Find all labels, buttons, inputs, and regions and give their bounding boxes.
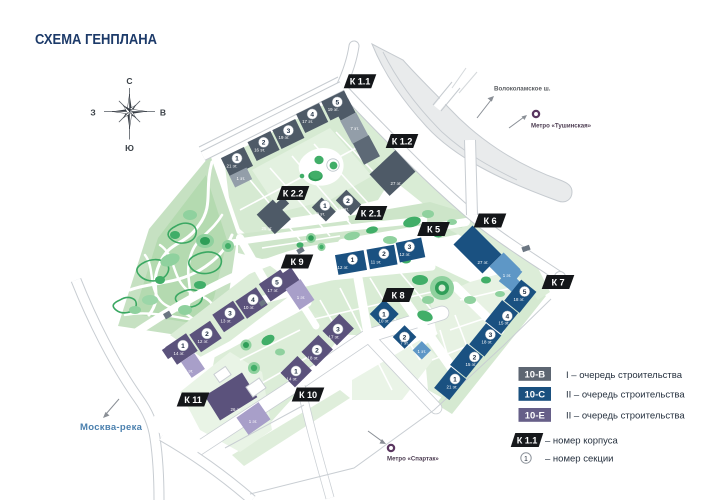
svg-text:К 11: К 11 [184, 395, 201, 405]
svg-text:II – очередь строительства: II – очередь строительства [566, 411, 685, 422]
svg-text:18 эт.: 18 эт. [308, 356, 319, 361]
svg-text:3: 3 [287, 128, 291, 135]
svg-text:1 эт.: 1 эт. [297, 295, 306, 300]
svg-text:3: 3 [336, 326, 340, 333]
svg-text:5: 5 [335, 99, 339, 106]
svg-text:К 2.2: К 2.2 [283, 188, 303, 198]
svg-text:10-С: 10-С [525, 390, 546, 401]
svg-text:25 эт.: 25 эт. [262, 226, 273, 231]
svg-text:Ю: Ю [125, 143, 134, 153]
svg-text:К 1.2: К 1.2 [392, 136, 412, 146]
svg-text:1 эт.: 1 эт. [185, 369, 194, 374]
svg-text:К 10: К 10 [299, 390, 317, 400]
svg-text:15 эт.: 15 эт. [466, 362, 477, 367]
svg-text:К 6: К 6 [484, 216, 497, 226]
svg-text:2: 2 [315, 347, 319, 354]
svg-text:19 эт.: 19 эт. [328, 107, 339, 112]
svg-text:27 эт.: 27 эт. [391, 181, 402, 186]
svg-text:10 эт.: 10 эт. [379, 319, 390, 324]
svg-text:26 эт.: 26 эт. [231, 407, 242, 412]
svg-text:К 8: К 8 [392, 290, 405, 300]
svg-text:1 эт.: 1 эт. [418, 349, 427, 354]
svg-text:1: 1 [294, 368, 298, 375]
svg-text:1: 1 [235, 156, 239, 163]
svg-text:14 эт.: 14 эт. [174, 351, 185, 356]
svg-text:З: З [90, 108, 95, 118]
svg-text:1 эт.: 1 эт. [237, 176, 246, 181]
svg-text:1: 1 [181, 343, 185, 350]
svg-text:2: 2 [205, 331, 209, 338]
svg-text:18 эт.: 18 эт. [482, 340, 493, 345]
svg-text:1: 1 [351, 257, 355, 264]
svg-text:2: 2 [473, 354, 477, 361]
svg-text:5: 5 [523, 289, 527, 296]
svg-text:19 эт.: 19 эт. [279, 135, 290, 140]
svg-text:II – очередь строительства: II – очередь строительства [566, 390, 685, 401]
svg-text:5: 5 [275, 279, 279, 286]
svg-text:17 эт.: 17 эт. [268, 288, 279, 293]
svg-text:С: С [126, 76, 132, 86]
svg-text:12 эт.: 12 эт. [338, 265, 349, 270]
svg-text:21 эт.: 21 эт. [447, 385, 458, 390]
svg-text:К 5: К 5 [427, 224, 440, 234]
svg-text:2: 2 [346, 198, 350, 205]
svg-text:12 эт.: 12 эт. [400, 252, 411, 257]
svg-text:10-Е: 10-Е [525, 411, 545, 422]
svg-text:1: 1 [524, 456, 528, 463]
svg-text:10 эт.: 10 эт. [314, 212, 325, 217]
svg-text:4: 4 [251, 297, 255, 304]
svg-text:1 эт.: 1 эт. [249, 419, 258, 424]
svg-text:– номер корпуса: – номер корпуса [545, 436, 619, 447]
svg-text:7 эт.: 7 эт. [350, 126, 359, 131]
svg-text:1: 1 [382, 311, 386, 318]
svg-text:10-В: 10-В [525, 370, 546, 381]
svg-text:14 эт.: 14 эт. [287, 377, 298, 382]
svg-text:11 эт.: 11 эт. [338, 207, 349, 212]
svg-text:27 эт.: 27 эт. [478, 260, 489, 265]
svg-text:К 7: К 7 [552, 277, 565, 287]
svg-text:4: 4 [310, 111, 314, 118]
svg-text:К 2.1: К 2.1 [361, 208, 381, 218]
svg-text:2: 2 [262, 140, 266, 147]
svg-text:– номер секции: – номер секции [545, 454, 613, 465]
svg-text:Метро «Тушинская»: Метро «Тушинская» [531, 123, 592, 130]
svg-text:3: 3 [408, 244, 412, 251]
svg-text:Метро «Спартак»: Метро «Спартак» [387, 456, 439, 463]
svg-text:18 эт.: 18 эт. [514, 297, 525, 302]
svg-text:4: 4 [505, 313, 509, 320]
svg-text:15 эт.: 15 эт. [499, 321, 510, 326]
svg-text:I – очередь строительства: I – очередь строительства [566, 370, 683, 381]
svg-text:10 эт.: 10 эт. [244, 305, 255, 310]
svg-text:К 1.1: К 1.1 [517, 436, 537, 446]
svg-text:1 эт.: 1 эт. [503, 273, 512, 278]
svg-text:Москва-река: Москва-река [80, 422, 143, 433]
svg-text:3: 3 [228, 310, 232, 317]
svg-text:17 эт.: 17 эт. [302, 119, 313, 124]
svg-text:13 эт.: 13 эт. [221, 319, 232, 324]
svg-text:11 эт.: 11 эт. [371, 260, 382, 265]
svg-text:К 1.1: К 1.1 [350, 77, 370, 87]
svg-text:1: 1 [453, 376, 457, 383]
svg-text:СХЕМА ГЕНПЛАНА: СХЕМА ГЕНПЛАНА [35, 32, 157, 48]
svg-text:21 эт.: 21 эт. [227, 164, 238, 169]
svg-text:3: 3 [489, 332, 493, 339]
svg-text:К 9: К 9 [291, 257, 304, 267]
svg-text:1: 1 [323, 203, 327, 210]
svg-text:17 эт.: 17 эт. [329, 335, 340, 340]
svg-text:2: 2 [382, 251, 386, 258]
svg-text:7 эт.: 7 эт. [400, 341, 409, 346]
svg-text:12 эт.: 12 эт. [198, 339, 209, 344]
svg-text:В: В [160, 108, 166, 118]
svg-text:Волоколамское ш.: Волоколамское ш. [494, 86, 551, 93]
svg-text:16 эт.: 16 эт. [254, 148, 265, 153]
